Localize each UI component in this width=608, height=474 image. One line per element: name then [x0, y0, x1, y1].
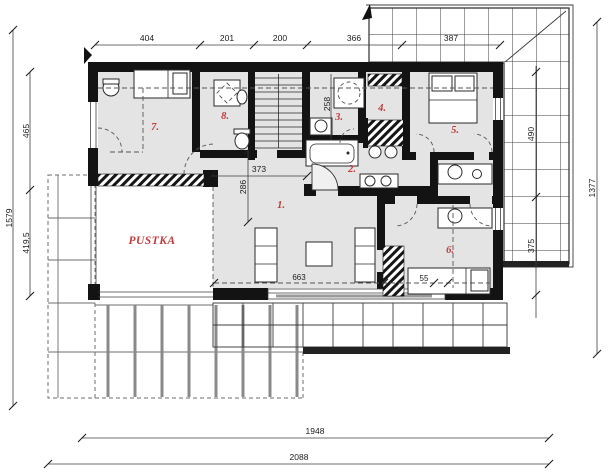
dim-bottom-outer: 2088: [290, 452, 309, 462]
shower-room3: [334, 78, 364, 108]
room-label-4: 4.: [377, 103, 386, 114]
dim-bottom-inner: 1948: [306, 426, 325, 436]
dim-bath-depth: 258: [322, 97, 332, 111]
room-label-8: 8.: [221, 111, 229, 122]
chair-room6: [448, 209, 462, 223]
desk-room6: [438, 208, 492, 228]
wardrobe-hatch-room4: [366, 120, 404, 146]
stool-room4-a: [369, 146, 381, 158]
dim-top-5: 387: [444, 33, 458, 43]
basin-room2-a: [365, 176, 375, 186]
stool-room4-b: [385, 146, 397, 158]
basin-room3: [315, 120, 327, 132]
shower-room8: [214, 80, 240, 106]
basin-room8: [237, 90, 247, 104]
dim-left-upper: 465: [21, 124, 31, 138]
pillow-room6: [471, 270, 488, 291]
dim-roof-lower: 375: [526, 239, 536, 253]
cabinet-hall-left: [255, 228, 277, 282]
pillow-room5-a: [432, 76, 452, 91]
dim-opening: 663: [292, 273, 306, 282]
chair-room5: [448, 165, 462, 179]
dim-hall-depth: 286: [238, 180, 248, 194]
table-hall: [306, 242, 332, 266]
cabinet-hall-right: [355, 228, 375, 282]
room-label-1: 1.: [277, 200, 285, 211]
pillow-room7: [173, 73, 187, 94]
wardrobe-hatch-top: [368, 74, 402, 86]
room-label-3: 3.: [334, 112, 343, 123]
toilet-room8: [235, 133, 249, 149]
strip-eave-edge: [303, 347, 510, 354]
roof-corner-marker: [362, 4, 372, 20]
dim-bed-width: 55: [420, 274, 429, 283]
room-label-5: 5.: [451, 125, 459, 136]
dim-hall-width: 373: [252, 164, 266, 174]
void-railing: [98, 292, 213, 297]
terrace-planks: [108, 305, 297, 397]
room-label-2: 2.: [347, 164, 356, 175]
roof-strip-bottom: [213, 303, 510, 354]
floor-plan-drawing: 404 201 200 366 387 1579 465 419,5 1377 …: [0, 0, 608, 474]
room-label-6: 6.: [446, 245, 454, 256]
pillow-room5-b: [455, 76, 474, 91]
dim-left-total: 1579: [4, 208, 14, 227]
lamp: [473, 170, 482, 179]
dim-top-3: 200: [273, 33, 287, 43]
dim-top-4: 366: [347, 33, 361, 43]
dim-right-total: 1377: [587, 178, 597, 197]
wardrobe-hatch-room6: [383, 246, 404, 296]
dim-roof-upper: 490: [526, 127, 536, 141]
void-balustrade-hatch: [98, 174, 204, 186]
floor-plan-canvas: 404 201 200 366 387 1579 465 419,5 1377 …: [0, 0, 608, 474]
window-left: [88, 102, 98, 148]
void-label: PUSTKA: [128, 235, 175, 247]
window-right-1: [493, 98, 503, 120]
dim-top-1: 404: [140, 33, 154, 43]
desk-room5: [438, 164, 492, 184]
basin-room2-b: [381, 176, 391, 186]
window-right-2: [493, 208, 503, 230]
dim-top-2: 201: [220, 33, 234, 43]
plan-corner-marker: [84, 47, 92, 64]
dim-left-lower: 419,5: [21, 232, 31, 254]
room-label-7: 7.: [151, 122, 159, 133]
